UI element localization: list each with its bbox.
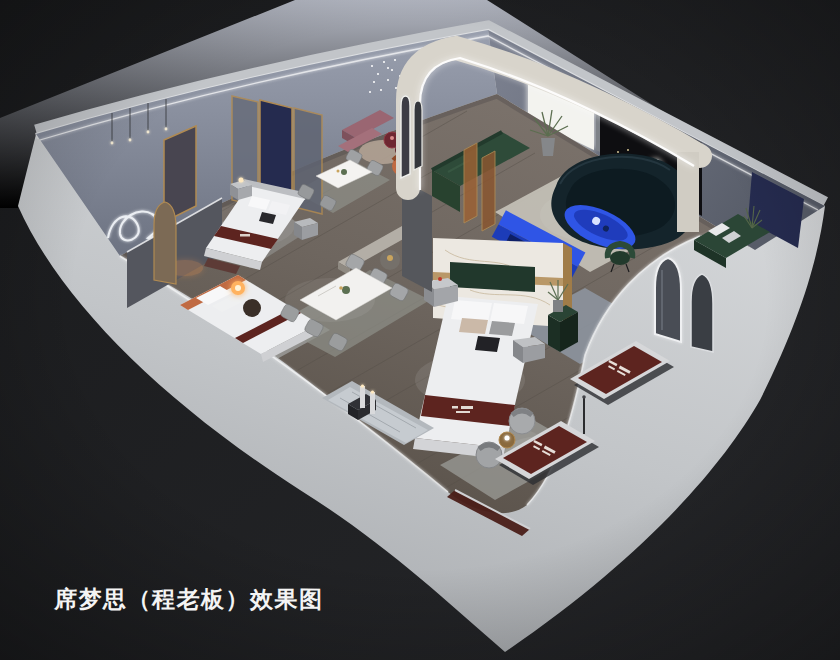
render-canvas: 席梦思（程老板）效果图: [0, 0, 840, 660]
caption: 席梦思（程老板）效果图: [54, 584, 324, 615]
showroom-render: [0, 0, 840, 660]
vignette-overlay: [0, 0, 840, 660]
